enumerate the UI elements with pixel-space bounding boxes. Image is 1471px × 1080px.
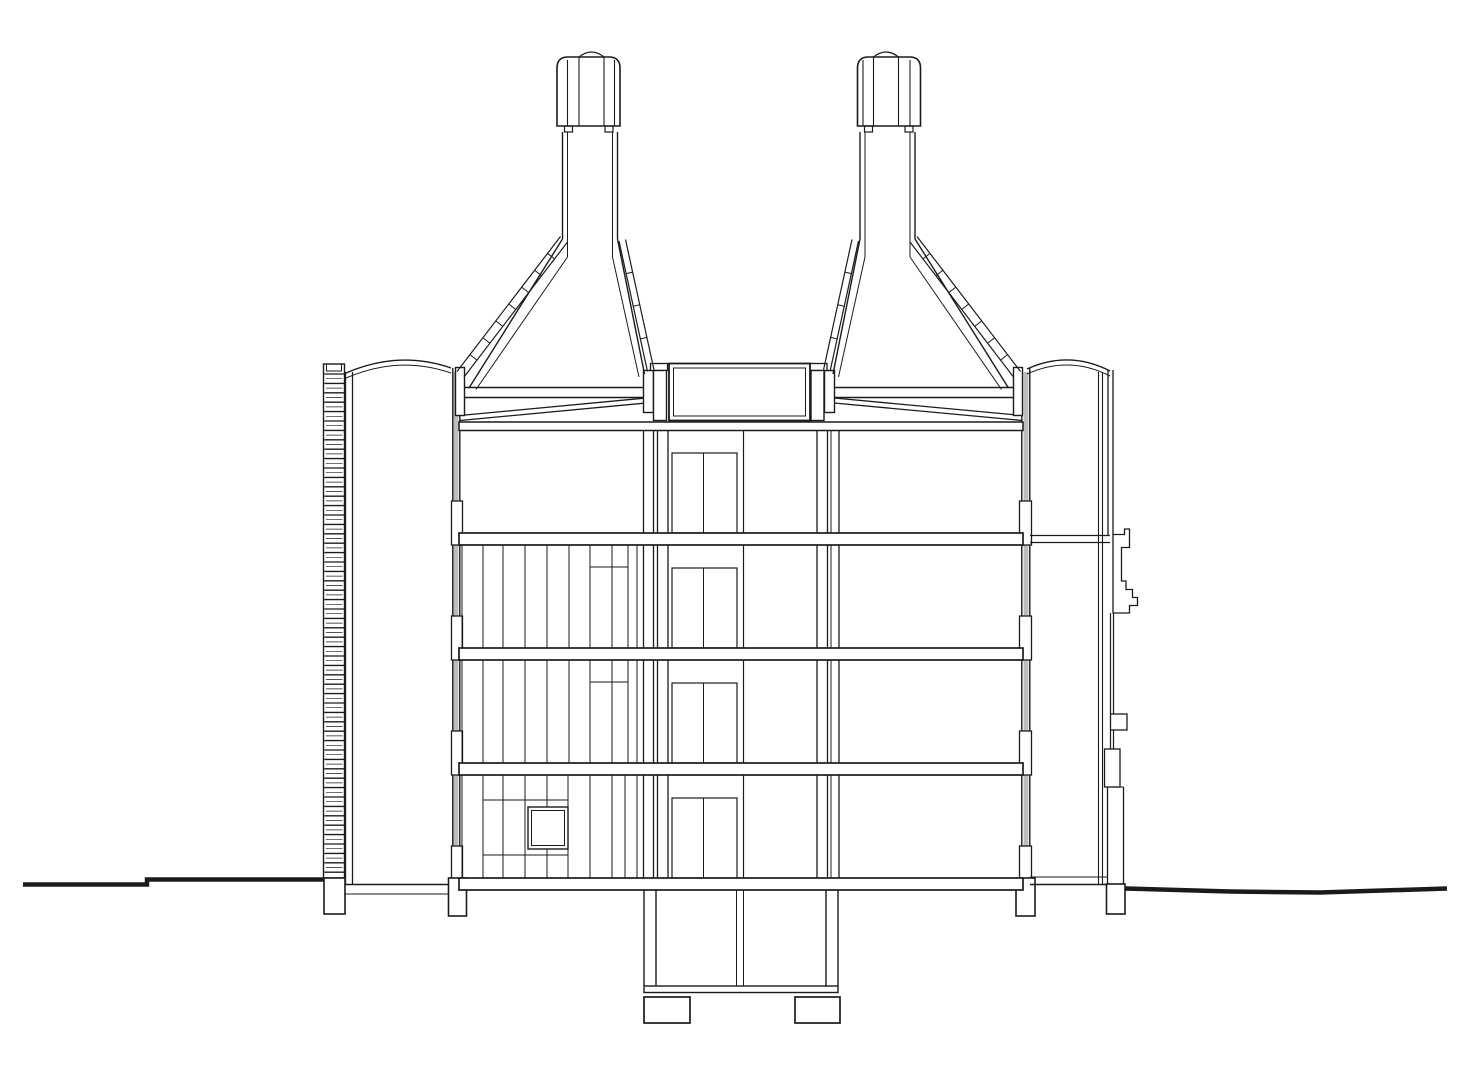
right-vaulted-volume (1027, 360, 1138, 914)
roof-structure (456, 364, 1023, 421)
architectural-section-page (0, 0, 1471, 1080)
left-vaulted-volume (345, 360, 452, 894)
left-tower (457, 52, 654, 390)
left-louvre-strip (324, 364, 346, 914)
main-right-wall (1016, 368, 1035, 916)
right-tower (824, 52, 1021, 390)
ground-floor-plan-detail (462, 775, 637, 878)
main-left-wall (449, 368, 467, 916)
stack-partitions-floor2 (462, 545, 637, 648)
basement (644, 890, 840, 1023)
stack-partitions-floor3 (462, 660, 637, 763)
building-section-drawing (0, 0, 1471, 1080)
